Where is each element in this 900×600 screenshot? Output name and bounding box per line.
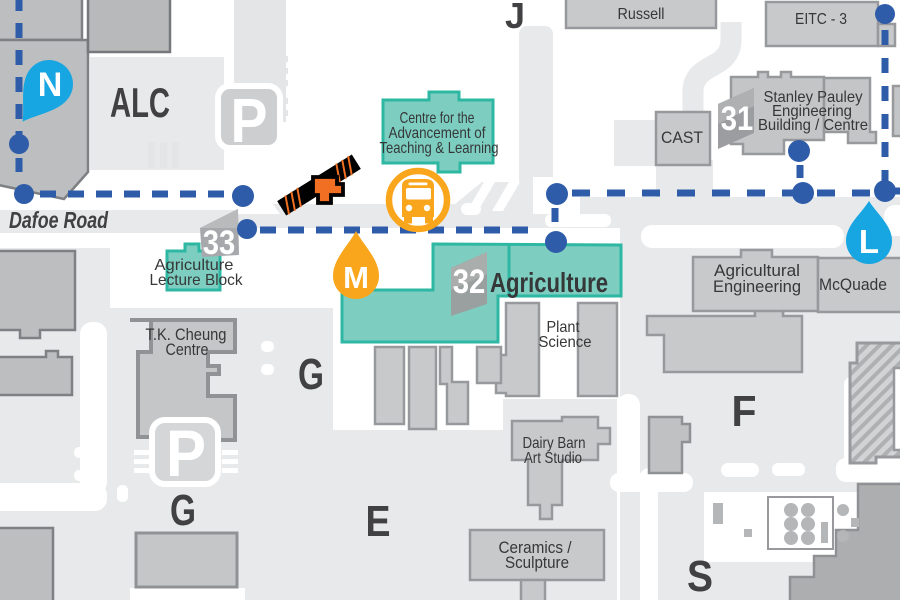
- svg-text:32: 32: [453, 262, 486, 301]
- svg-text:J: J: [505, 0, 525, 36]
- svg-text:G: G: [170, 486, 196, 535]
- svg-text:G: G: [298, 350, 324, 399]
- svg-text:P: P: [166, 416, 206, 490]
- svg-text:M: M: [343, 260, 369, 295]
- svg-text:Engineering: Engineering: [713, 277, 801, 296]
- svg-text:N: N: [38, 66, 63, 104]
- svg-text:McQuade: McQuade: [819, 275, 887, 294]
- svg-text:Lecture Block: Lecture Block: [150, 272, 244, 289]
- svg-text:Art Studio: Art Studio: [524, 450, 582, 467]
- svg-text:L: L: [859, 223, 879, 260]
- svg-text:P: P: [231, 87, 268, 156]
- svg-text:33: 33: [203, 223, 236, 262]
- svg-text:E: E: [366, 497, 391, 546]
- svg-text:Russell: Russell: [618, 6, 665, 23]
- svg-text:S: S: [687, 552, 713, 600]
- svg-text:Sculpture: Sculpture: [505, 553, 569, 572]
- svg-text:Dafoe Road: Dafoe Road: [9, 207, 109, 233]
- svg-text:Teaching & Learning: Teaching & Learning: [380, 140, 499, 157]
- svg-text:Science: Science: [539, 334, 592, 351]
- svg-text:Building / Centre: Building / Centre: [758, 117, 868, 134]
- svg-text:31: 31: [721, 99, 754, 138]
- svg-text:Centre: Centre: [166, 340, 209, 359]
- svg-text:F: F: [732, 387, 757, 436]
- svg-text:Agriculture: Agriculture: [490, 267, 608, 298]
- svg-text:EITC - 3: EITC - 3: [795, 11, 847, 28]
- svg-text:ALC: ALC: [110, 79, 170, 126]
- svg-text:CAST: CAST: [661, 128, 703, 147]
